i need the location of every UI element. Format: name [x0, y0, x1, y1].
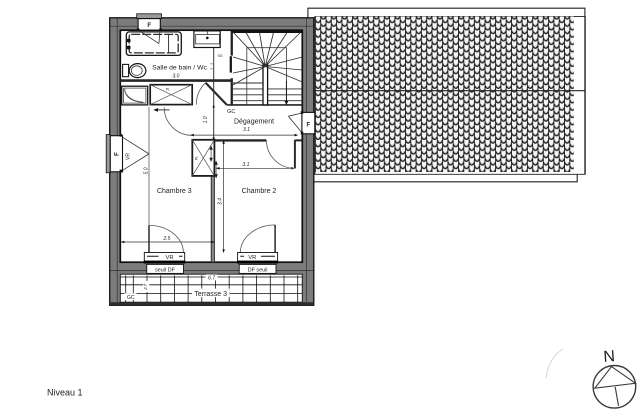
svg-text:Chambre 3: Chambre 3: [157, 188, 192, 195]
svg-text:3.0: 3.0: [173, 73, 180, 79]
svg-text:PL: PL: [166, 88, 170, 92]
svg-text:F: F: [306, 123, 310, 129]
svg-text:VR: VR: [125, 153, 131, 160]
svg-text:3.1: 3.1: [243, 127, 250, 133]
svg-text:Terrasse 3: Terrasse 3: [194, 291, 227, 298]
svg-text:Niveau 1: Niveau 1: [47, 387, 83, 397]
svg-text:Chambre 2: Chambre 2: [242, 188, 277, 195]
svg-text:Dégagement: Dégagement: [234, 119, 274, 126]
svg-text:F: F: [115, 152, 121, 156]
svg-text:GC: GC: [127, 295, 135, 301]
svg-text:F: F: [147, 23, 151, 29]
svg-text:PL: PL: [195, 156, 199, 160]
svg-text:GC: GC: [227, 109, 235, 115]
svg-text:3.4: 3.4: [217, 198, 223, 205]
svg-text:3.1: 3.1: [242, 162, 249, 168]
svg-text:seuil DF: seuil DF: [155, 268, 175, 274]
svg-text:VR: VR: [248, 255, 256, 261]
svg-text:Salle de bain / Wc: Salle de bain / Wc: [152, 65, 207, 72]
svg-text:2.7: 2.7: [143, 283, 148, 290]
svg-text:DF seuil: DF seuil: [248, 268, 268, 274]
svg-text:VR: VR: [165, 255, 173, 261]
svg-text:6.7: 6.7: [208, 276, 215, 282]
svg-text:SG: SG: [218, 54, 223, 58]
svg-text:2.5: 2.5: [163, 236, 171, 242]
svg-text:1.0: 1.0: [203, 116, 209, 123]
svg-text:N: N: [603, 348, 616, 366]
svg-text:5.0: 5.0: [144, 167, 150, 174]
